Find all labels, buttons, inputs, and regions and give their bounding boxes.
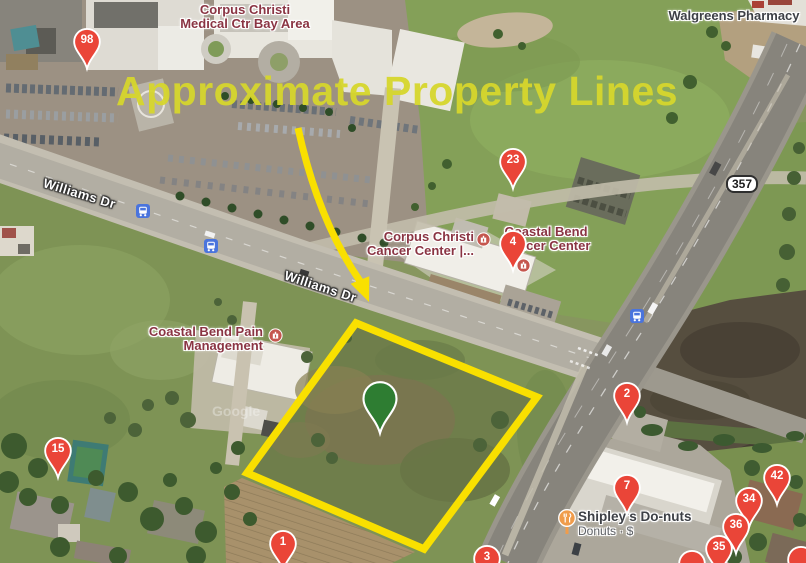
pin-number: 15 <box>44 442 72 457</box>
bus-transit-icon[interactable] <box>136 204 150 223</box>
poi-subtitle: Donuts · $ <box>578 524 691 538</box>
map-pin-2[interactable]: 2 <box>613 382 641 424</box>
map-pin-98[interactable]: 98 <box>73 28 101 70</box>
map-pin-3[interactable]: 3 <box>473 545 501 563</box>
pin-number: 36 <box>722 518 750 533</box>
poi-line: Corpus Christi <box>344 230 474 244</box>
map-pin-35[interactable]: 35 <box>705 535 733 563</box>
poi-label-walgreens[interactable]: Walgreens Pharmacy <box>649 9 806 23</box>
pin-number: 1 <box>269 535 297 550</box>
pin-number: 2 <box>613 387 641 402</box>
hospital-icon[interactable] <box>476 232 491 252</box>
map-canvas[interactable]: Google Williams Dr Williams Dr 357 Corpu… <box>0 0 806 563</box>
map-pin-7[interactable]: 7 <box>613 474 641 516</box>
bus-transit-icon[interactable] <box>204 239 218 258</box>
map-pin-partial[interactable] <box>678 550 706 563</box>
google-watermark: Google <box>212 403 260 419</box>
hospital-icon[interactable] <box>268 328 283 348</box>
pin-number: 4 <box>499 235 527 250</box>
pin-number: 34 <box>735 492 763 507</box>
bus-transit-icon[interactable] <box>630 309 644 328</box>
poi-line: Coastal Bend Pain <box>133 325 263 339</box>
map-pin-partial[interactable] <box>787 546 806 563</box>
pin-number: 35 <box>705 540 733 555</box>
annotation-title: Approximate Property Lines <box>116 68 678 115</box>
poi-label-cb-pain-management[interactable]: Coastal Bend Pain Management <box>133 325 263 353</box>
poi-line: Corpus Christi <box>150 3 340 17</box>
map-pin-15[interactable]: 15 <box>44 437 72 479</box>
poi-line: Management <box>133 339 263 353</box>
poi-line: Medical Ctr Bay Area <box>150 17 340 31</box>
poi-line: Walgreens Pharmacy <box>649 9 806 23</box>
property-marker-pin[interactable] <box>362 379 398 437</box>
map-pin-1[interactable]: 1 <box>269 530 297 563</box>
poi-label-cc-cancer-center[interactable]: Corpus Christi Cancer Center |... <box>344 230 474 258</box>
pin-number: 42 <box>763 469 791 484</box>
pin-number: 23 <box>499 153 527 168</box>
pin-number: 7 <box>613 479 641 494</box>
map-pin-23[interactable]: 23 <box>499 148 527 190</box>
poi-line: Cancer Center |... <box>344 244 474 258</box>
map-pin-4[interactable]: 4 <box>499 230 527 272</box>
poi-label-medical-ctr[interactable]: Corpus Christi Medical Ctr Bay Area <box>150 3 340 31</box>
route-shield-357: 357 <box>726 175 758 193</box>
pin-number: 3 <box>473 550 501 563</box>
pin-number: 98 <box>73 33 101 48</box>
map-pin-42[interactable]: 42 <box>763 464 791 506</box>
restaurant-icon[interactable] <box>557 508 577 540</box>
